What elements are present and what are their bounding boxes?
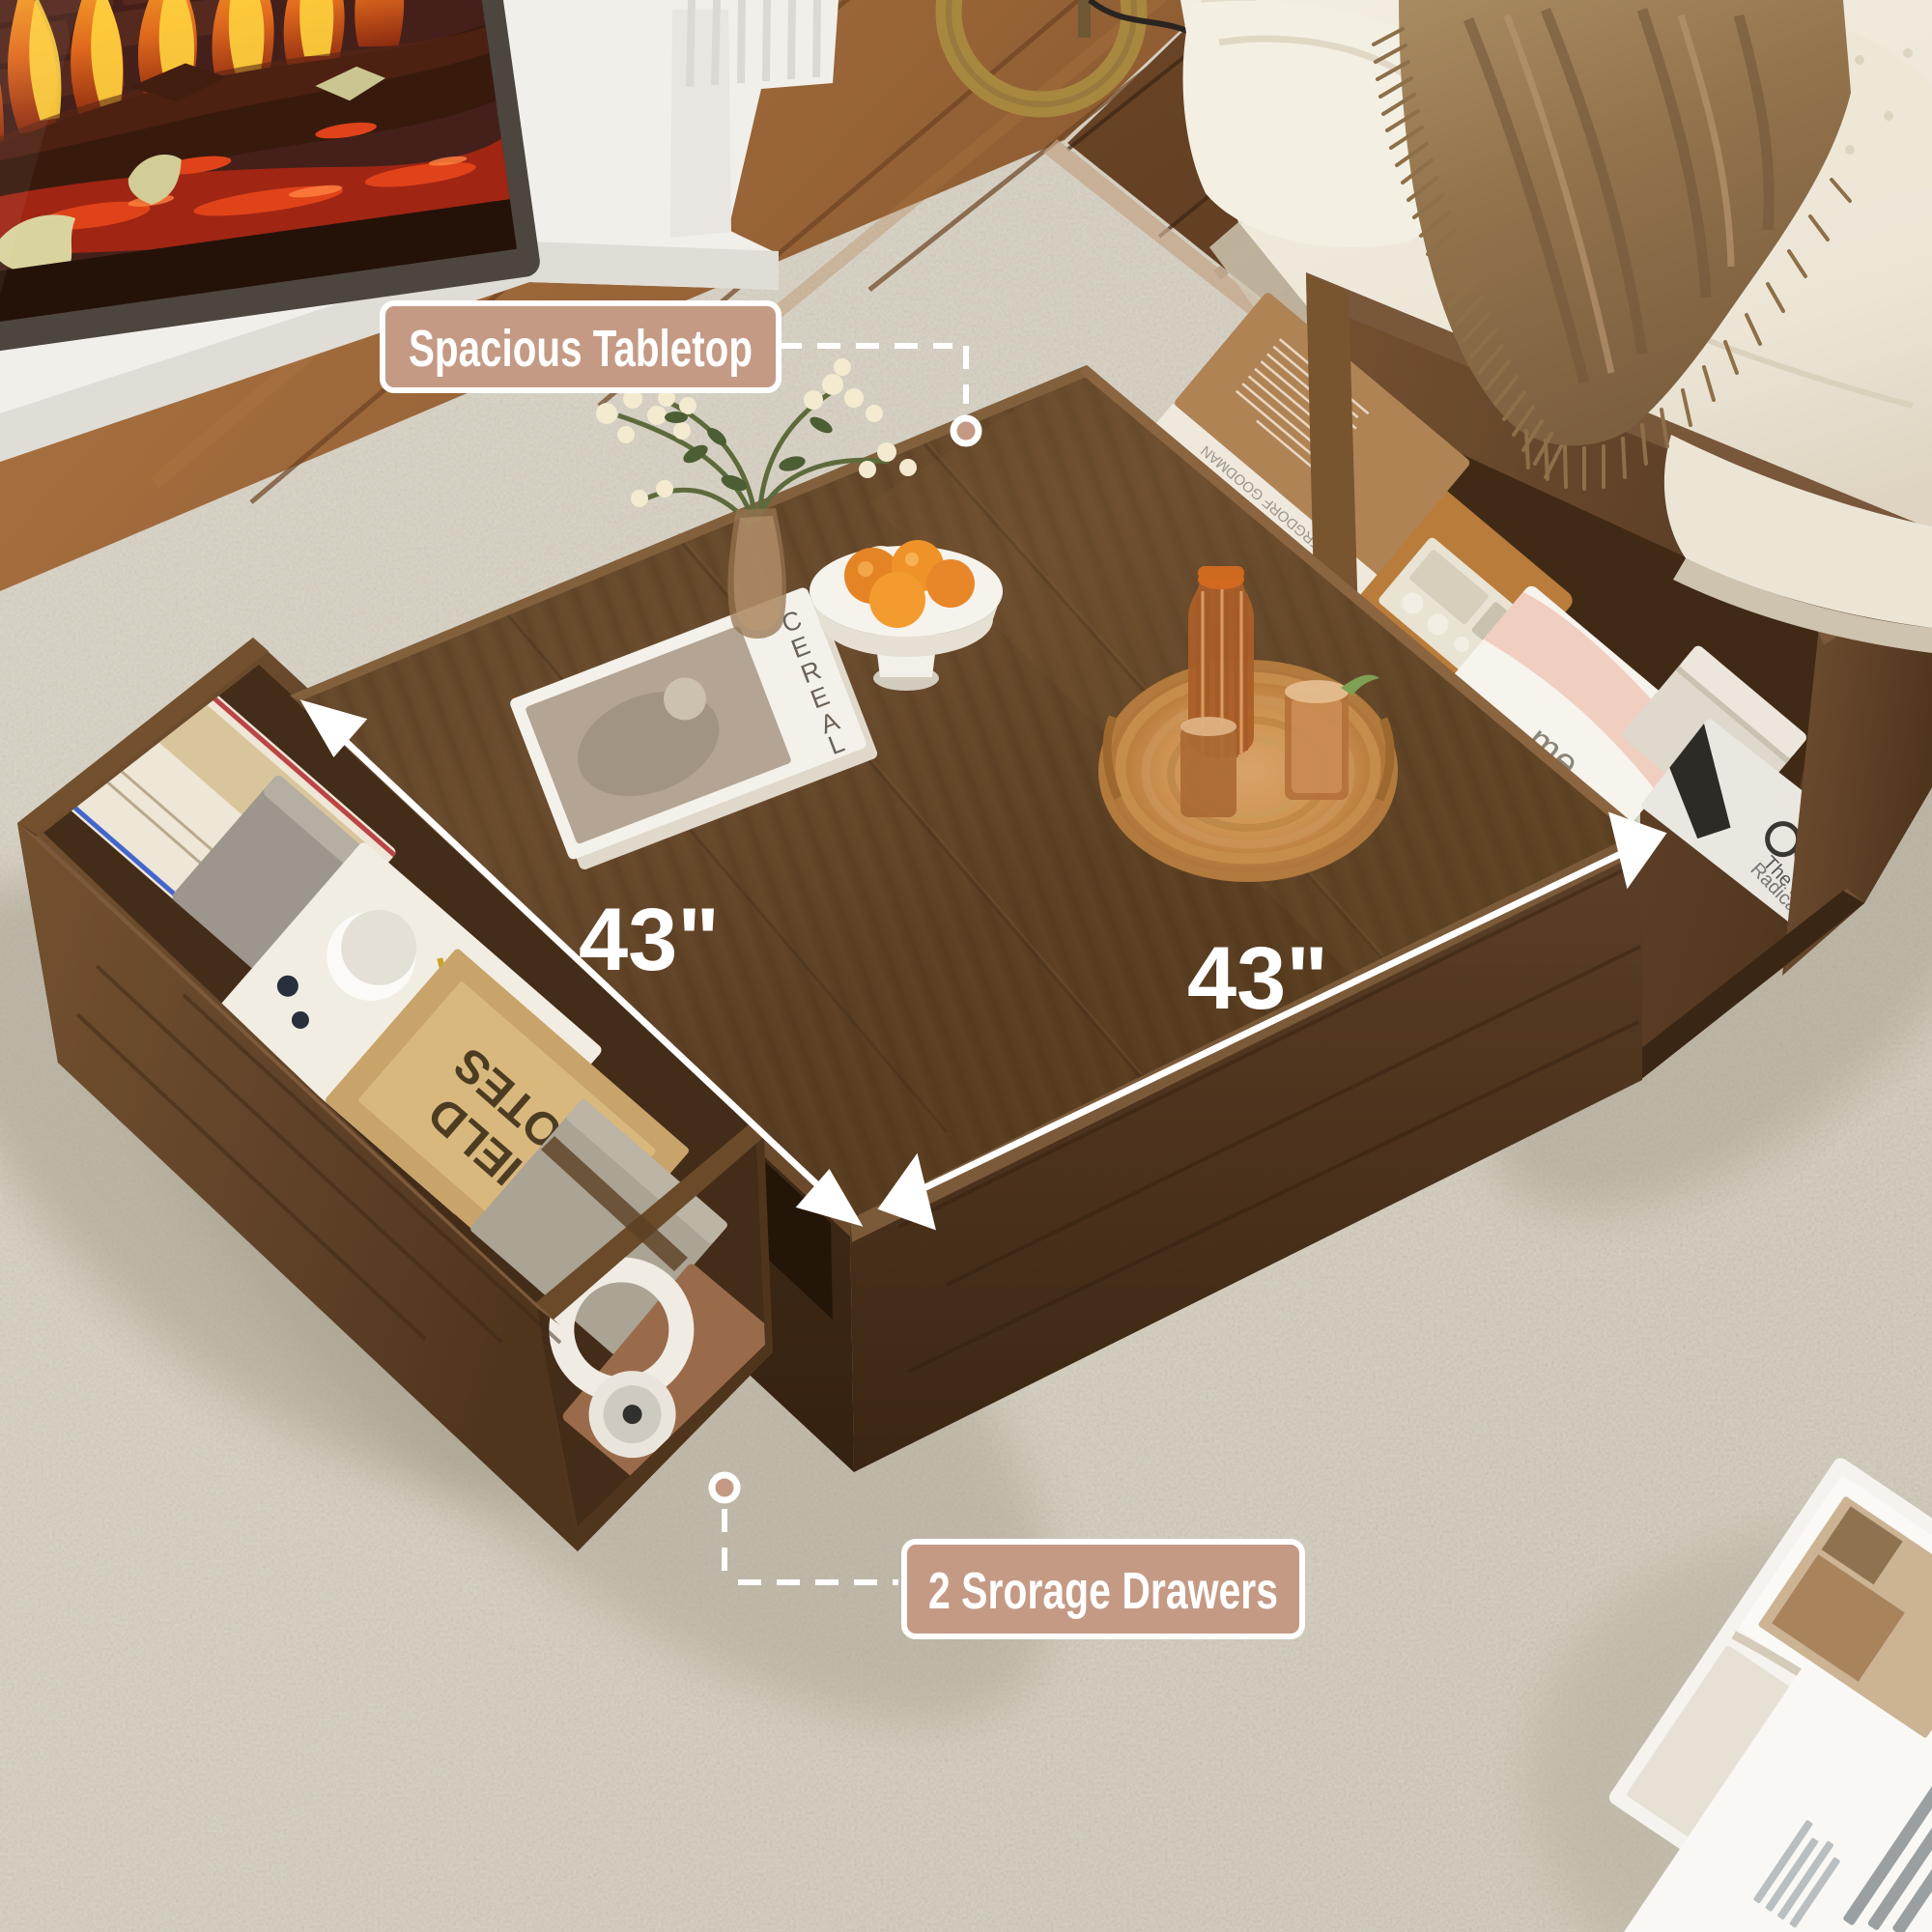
svg-text:Spacious Tabletop: Spacious Tabletop <box>409 320 753 378</box>
svg-text:2 Srorage Drawers: 2 Srorage Drawers <box>928 1562 1278 1620</box>
svg-text:43": 43" <box>1187 929 1328 1028</box>
svg-text:43": 43" <box>579 891 720 989</box>
